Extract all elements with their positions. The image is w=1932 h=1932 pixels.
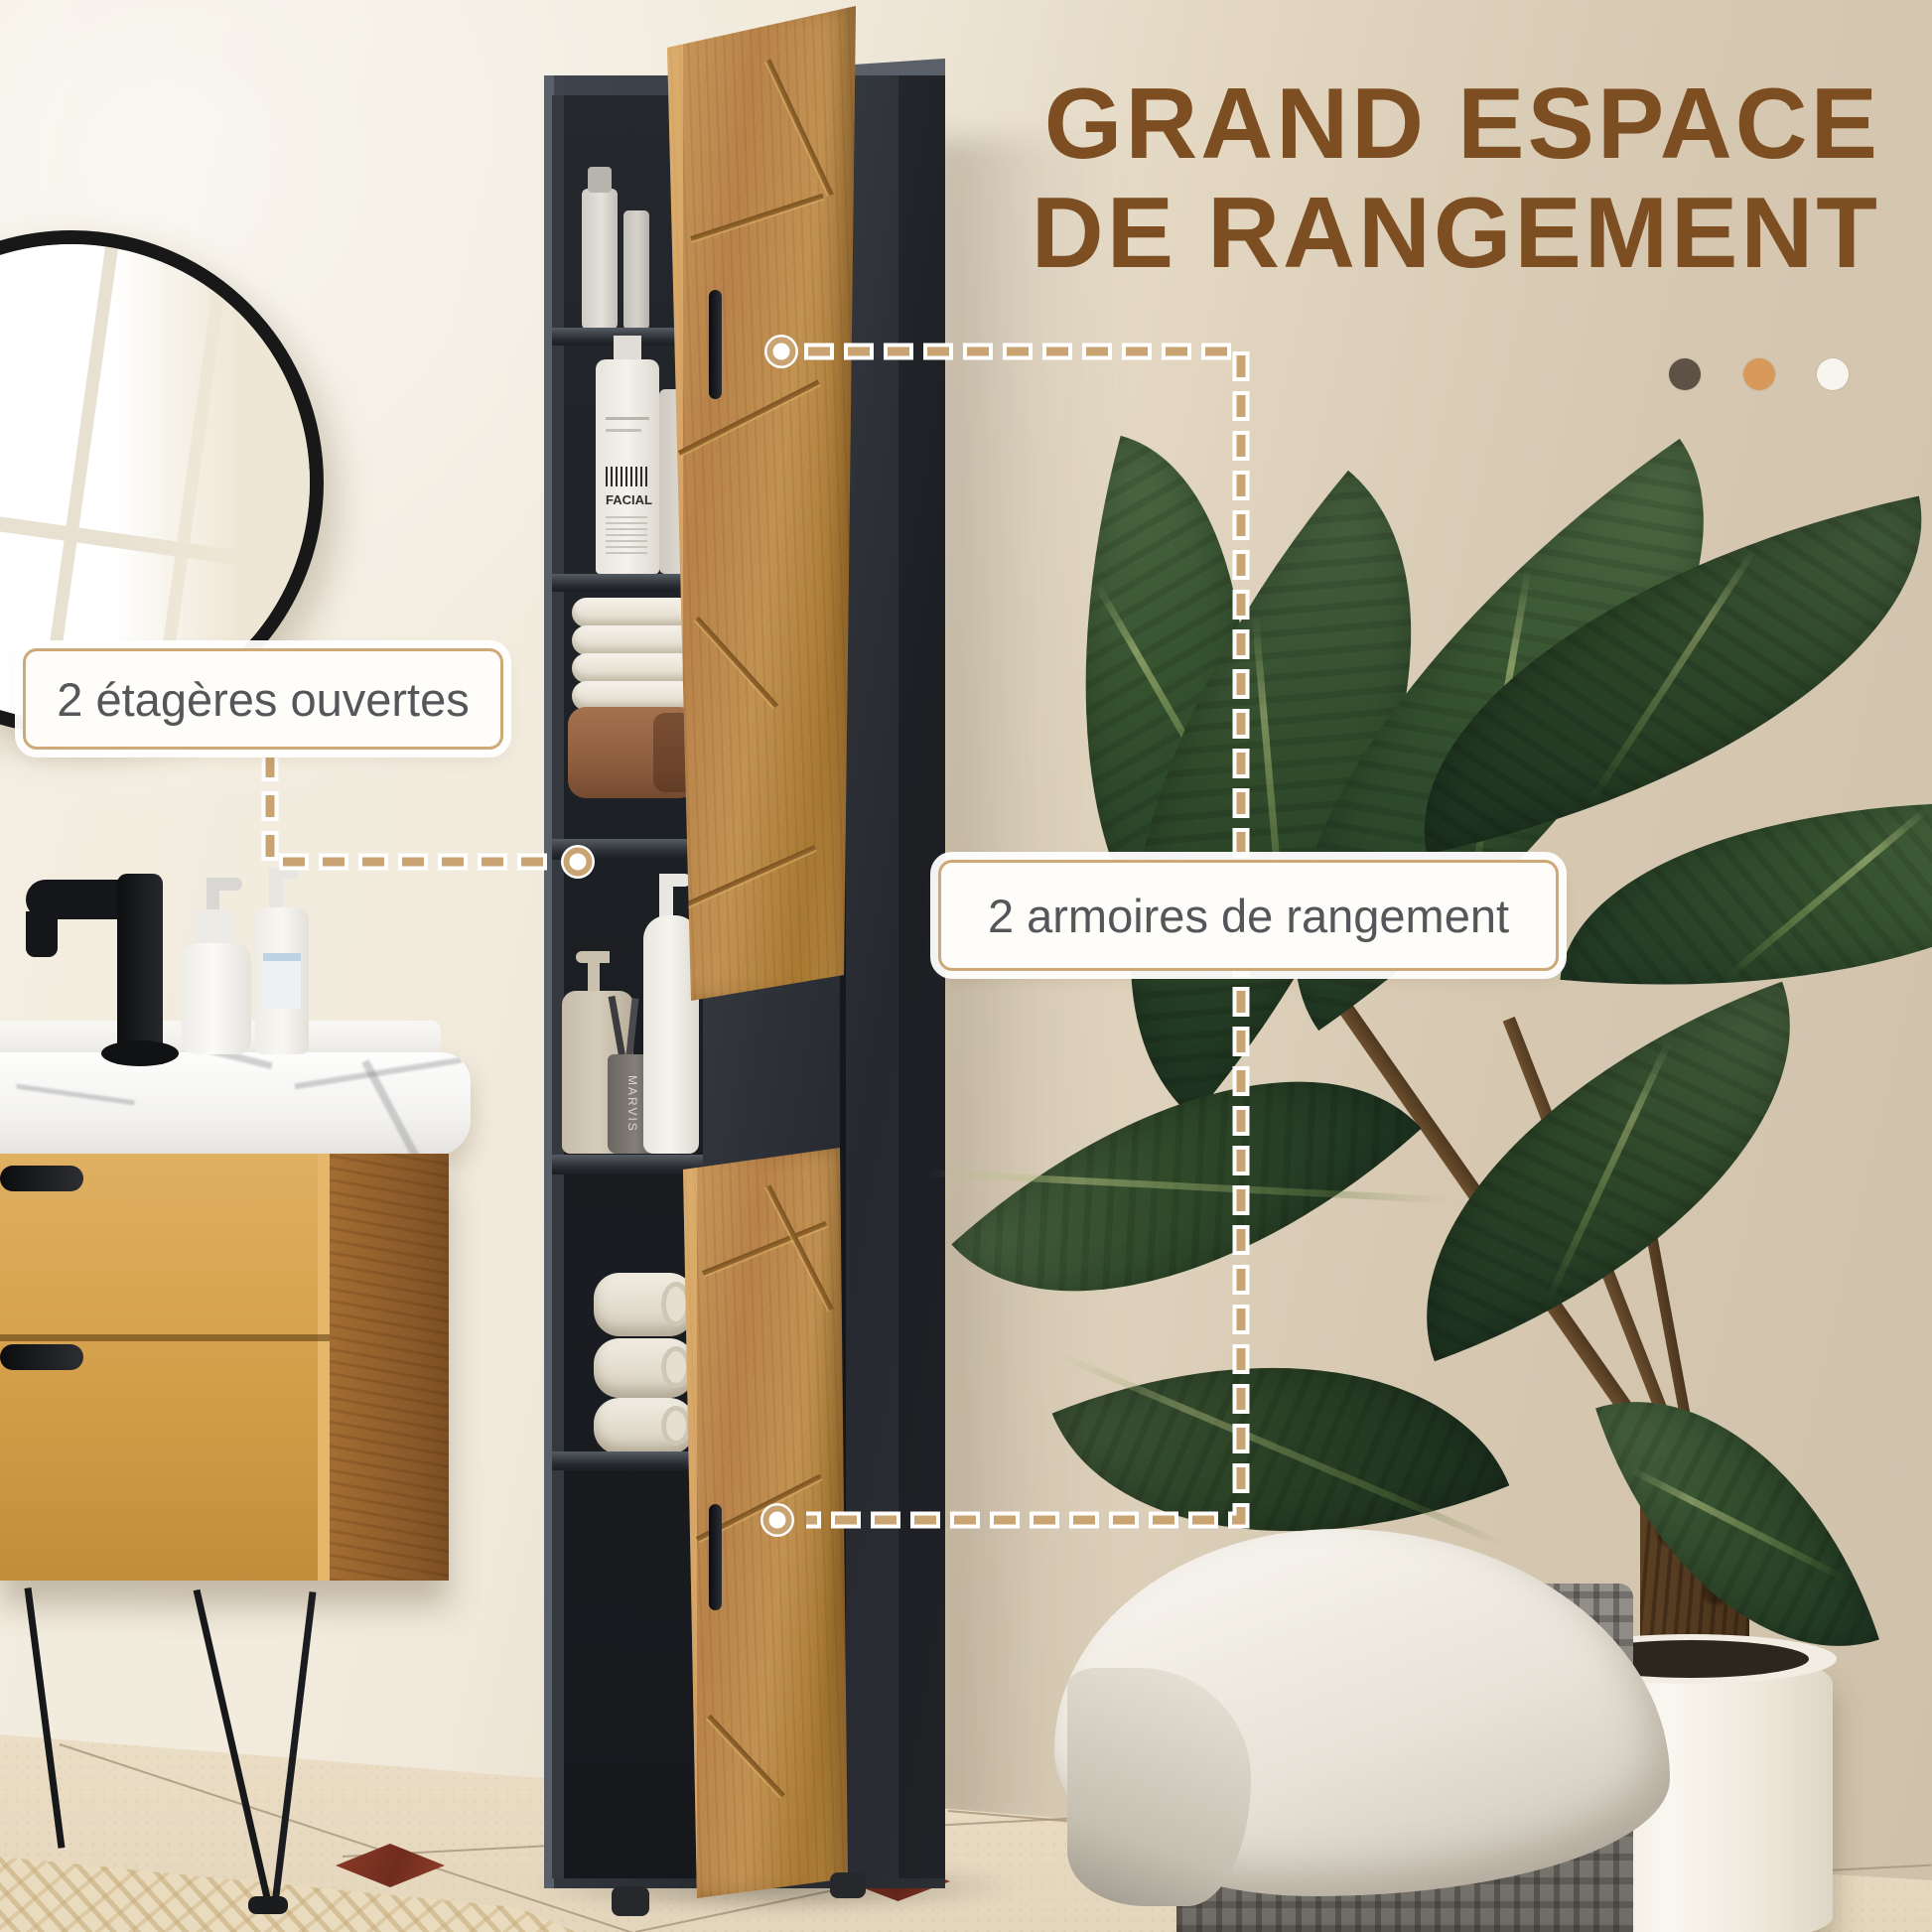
headline-line2: DE RANGEMENT <box>1032 179 1880 288</box>
product-photo-stage: FACIAL MARVIS <box>0 0 1932 1932</box>
color-swatch-dot-white <box>1817 358 1849 390</box>
callout-storage-cabinets-label: 2 armoires de rangement <box>988 889 1509 943</box>
color-swatch-dot-orange <box>1743 358 1775 390</box>
headline: GRAND ESPACE DE RANGEMENT <box>1032 69 1880 288</box>
callout-ring <box>561 335 798 1537</box>
callout-open-shelves: 2 étagères ouvertes <box>23 648 503 750</box>
callout-storage-cabinets: 2 armoires de rangement <box>938 860 1559 971</box>
headline-line1: GRAND ESPACE <box>1032 69 1880 179</box>
callout-open-shelves-label: 2 étagères ouvertes <box>57 672 469 727</box>
color-swatch-dot-brown <box>1669 358 1701 390</box>
